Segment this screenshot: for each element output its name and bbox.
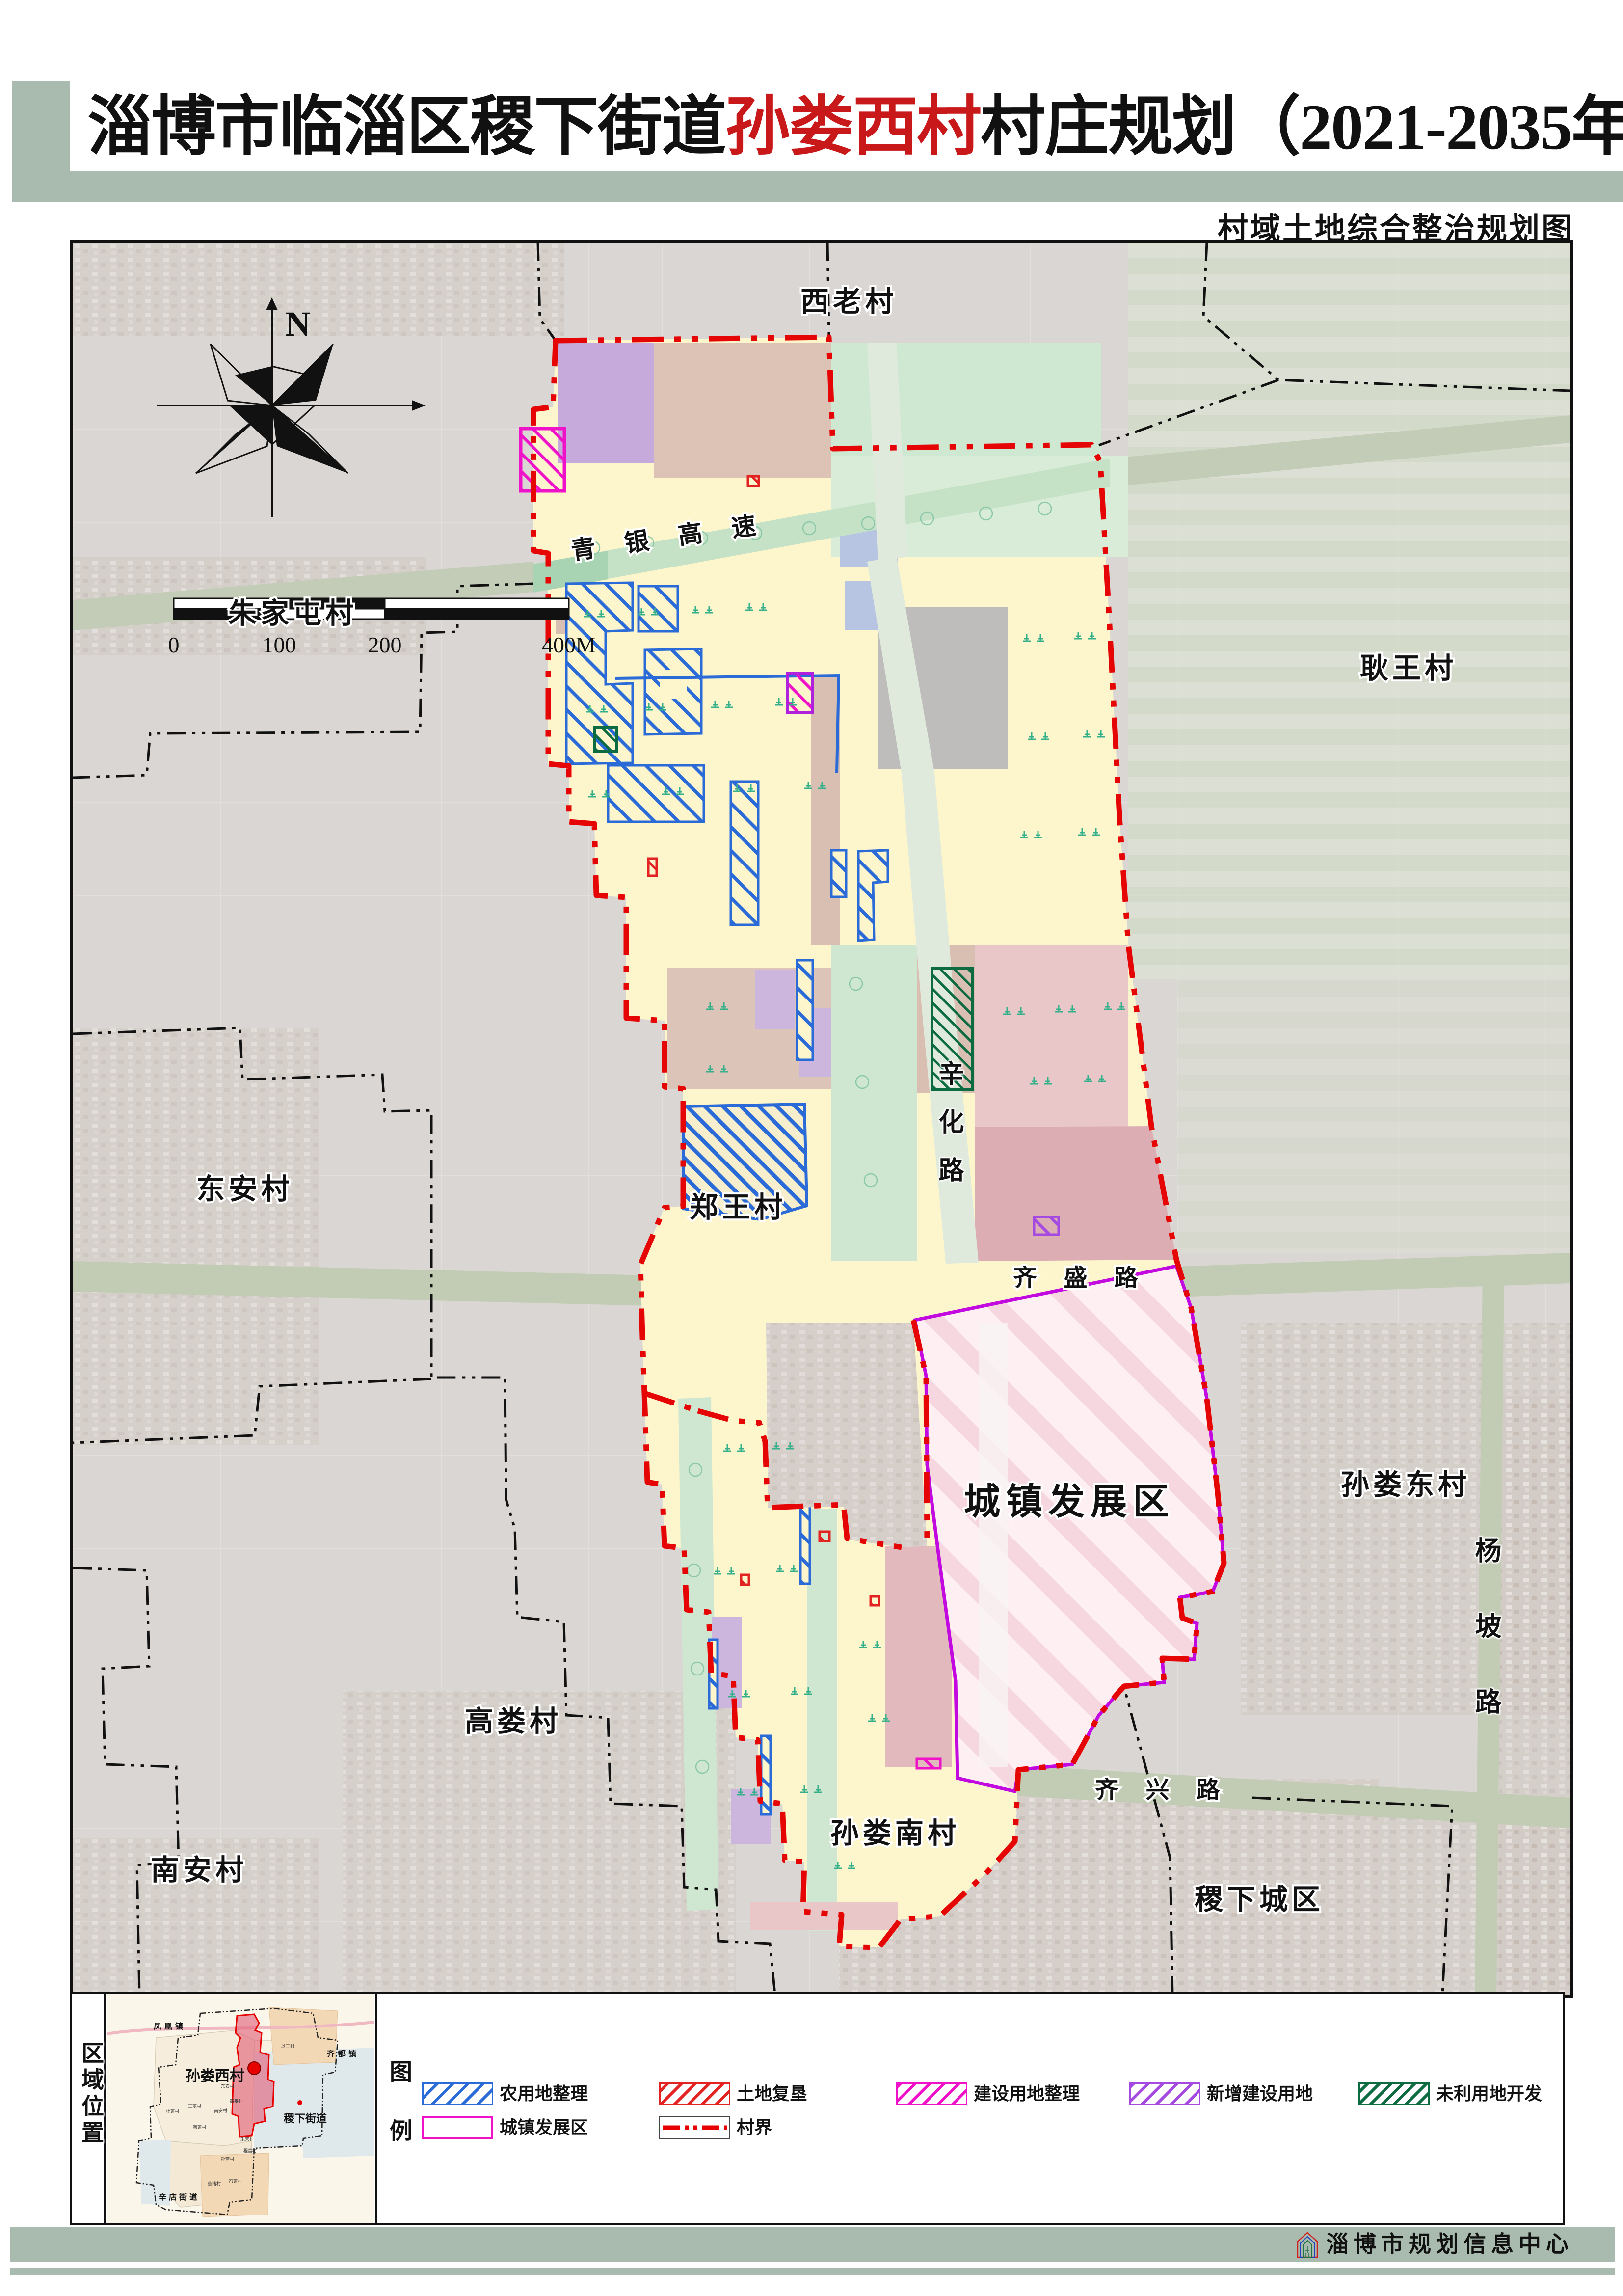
scale-tick-200: 200 — [368, 632, 402, 657]
label-zhengwangcun: 郑王村 — [690, 1191, 787, 1223]
legend-panel-title: 图例 — [383, 2060, 415, 2178]
legend-label-unused-land: 未利用地开发 — [1436, 2082, 1542, 2105]
inset-location-map: 凤凰镇 齐都镇 孙娄西村 稷下街道 辛店街道 耿王村 东安村 高娄村 王家村 杜… — [107, 1994, 374, 2223]
legend-swatch-new-construction — [1129, 2082, 1200, 2105]
legend-item-village-boundary: 村界 — [659, 2116, 895, 2139]
legend-swatch-reclamation — [659, 2082, 730, 2105]
inset-label-jixia-street: 稷下街道 — [284, 2112, 327, 2125]
inset-label-sunlouxicun: 孙娄西村 — [186, 2068, 244, 2084]
inset-small-sunying: 孙营村 — [221, 2156, 234, 2161]
inset-small-zhuying: 朱营村 — [240, 2136, 254, 2142]
panel-divider-2 — [375, 1992, 377, 2225]
legend-swatch-agricultural — [422, 2082, 493, 2105]
scale-tick-400: 400M — [542, 632, 596, 657]
label-qisheng-road: 齐盛路 — [1013, 1265, 1165, 1291]
new-construction-parcel-north — [787, 673, 812, 712]
footer-credit: 淄博市规划信息中心 — [1326, 2227, 1573, 2262]
scale-tick-100: 100 — [263, 632, 296, 657]
new-construction-parcel — [1034, 1217, 1059, 1235]
inset-small-chengying: 程营村 — [243, 2148, 257, 2153]
unused-land-dev-small — [594, 728, 617, 751]
label-xilaocun: 西老村 — [800, 286, 898, 318]
inset-village-dot — [248, 2062, 261, 2075]
legend-swatch-construction — [896, 2082, 967, 2105]
inset-label-fenghuang: 凤凰镇 — [154, 2022, 186, 2031]
legend-swatch-unused-land — [1358, 2082, 1430, 2105]
legend-item-unused-land: 未利用地开发 — [1358, 2082, 1594, 2105]
label-dongancun: 东安村 — [196, 1173, 293, 1205]
legend-item-construction: 建设用地整理 — [896, 2082, 1132, 2105]
label-yangpo-road: 杨坡路 — [1466, 1537, 1505, 1763]
inset-street-dot — [297, 2100, 302, 2105]
title-suffix: 村庄规划（2021-2035年） — [981, 91, 1623, 163]
label-qixing-road: 齐兴路 — [1095, 1777, 1247, 1803]
label-sunlounancun: 孙娄南村 — [830, 1817, 960, 1849]
inset-label-xindian: 辛店街道 — [159, 2192, 200, 2202]
inset-small-gengwang: 耿王村 — [281, 2043, 294, 2049]
legend-item-agricultural: 农用地整理 — [422, 2082, 658, 2105]
compass-north-label: N — [285, 304, 311, 344]
planning-center-logo — [1296, 2232, 1319, 2258]
legend-item-urban-zone: 城镇发展区 — [422, 2116, 658, 2139]
legend-swatch-urban-zone — [422, 2116, 493, 2139]
legend-label-agricultural: 农用地整理 — [500, 2082, 588, 2105]
legend-item-reclamation: 土地复垦 — [659, 2082, 895, 2105]
main-map: N 0 100 200 400M 西老村 朱家屯村 耿王村 东安村 郑王村 孙娄… — [70, 240, 1573, 1998]
header-accent-bar — [12, 81, 70, 182]
legend-label-new-construction: 新增建设用地 — [1207, 2082, 1313, 2105]
construction-land-consolidation-parcel — [521, 429, 564, 491]
legend-label-construction: 建设用地整理 — [974, 2082, 1080, 2105]
legend-label-urban-zone: 城镇发展区 — [500, 2116, 588, 2139]
label-sunloudongcun: 孙娄东村 — [1341, 1469, 1470, 1501]
label-gaoloucun: 高娄村 — [465, 1705, 562, 1737]
inset-small-wangjia: 王家村 — [188, 2103, 201, 2108]
scale-tick-0: 0 — [168, 632, 180, 657]
inset-small-nanan: 南安村 — [214, 2108, 227, 2113]
label-zhujiatuncun: 朱家屯村 — [228, 597, 358, 629]
inset-small-dongchu: 董褚村 — [208, 2181, 221, 2186]
label-jixiachengqu: 稷下城区 — [1195, 1884, 1324, 1916]
inset-small-hanjia: 韩家村 — [193, 2124, 206, 2130]
header-accent-band — [12, 171, 1623, 202]
label-nanancun: 南安村 — [151, 1854, 248, 1886]
region-location-title: 区域位置 — [75, 2041, 107, 2147]
legend-item-new-construction: 新增建设用地 — [1129, 2082, 1365, 2105]
label-gengwangcun: 耿王村 — [1360, 652, 1457, 684]
footer-strip — [10, 2268, 1615, 2275]
title-prefix: 淄博市临淄区稷下街道 — [87, 91, 725, 163]
page-title: 淄博市临淄区稷下街道孙娄西村村庄规划（2021-2035年） — [87, 83, 1619, 171]
parcel-hole — [660, 670, 687, 699]
legend-label-village-boundary: 村界 — [737, 2116, 772, 2139]
inset-label-qidu: 齐都镇 — [327, 2049, 359, 2058]
label-xinhua-road: 辛化路 — [930, 1060, 967, 1205]
title-village-name: 孙娄西村 — [725, 91, 981, 163]
label-urban-zone: 城镇发展区 — [964, 1482, 1175, 1522]
legend-label-reclamation: 土地复垦 — [737, 2082, 807, 2105]
legend-swatch-village-boundary — [659, 2116, 730, 2139]
inset-small-gaolou: 高娄村 — [230, 2098, 243, 2104]
inset-small-dujia: 杜家村 — [166, 2108, 179, 2114]
inset-small-fengjia: 冯家村 — [229, 2178, 242, 2184]
inset-small-dongan: 东安村 — [221, 2083, 234, 2089]
construction-land-consolidation-small — [917, 1759, 940, 1768]
